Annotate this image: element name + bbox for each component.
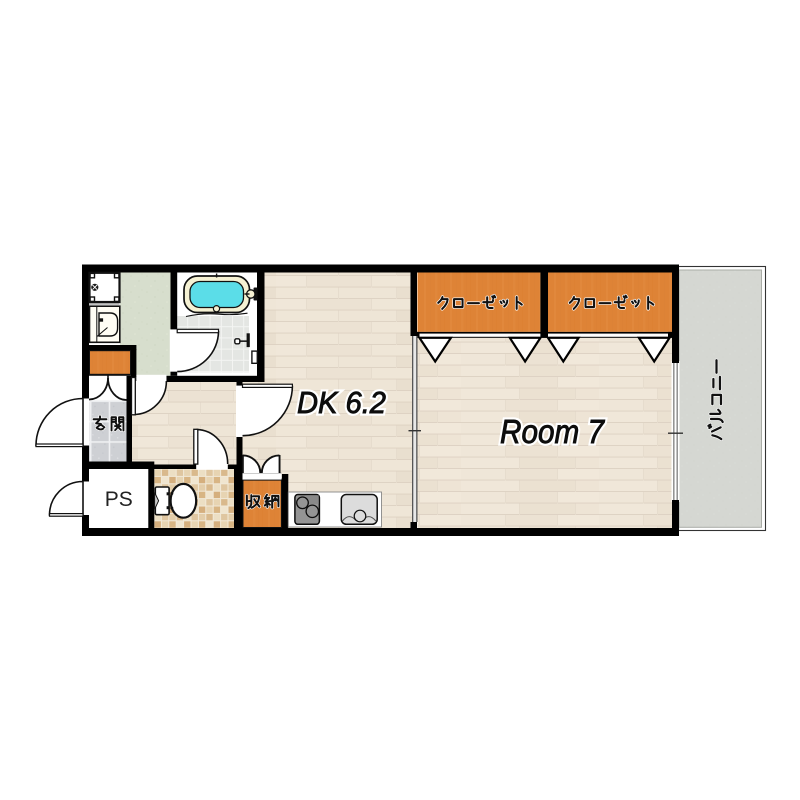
svg-text:Room 7: Room 7 [500,413,605,450]
svg-text:DK 6.2: DK 6.2 [297,385,386,420]
svg-text:PS: PS [105,488,133,511]
